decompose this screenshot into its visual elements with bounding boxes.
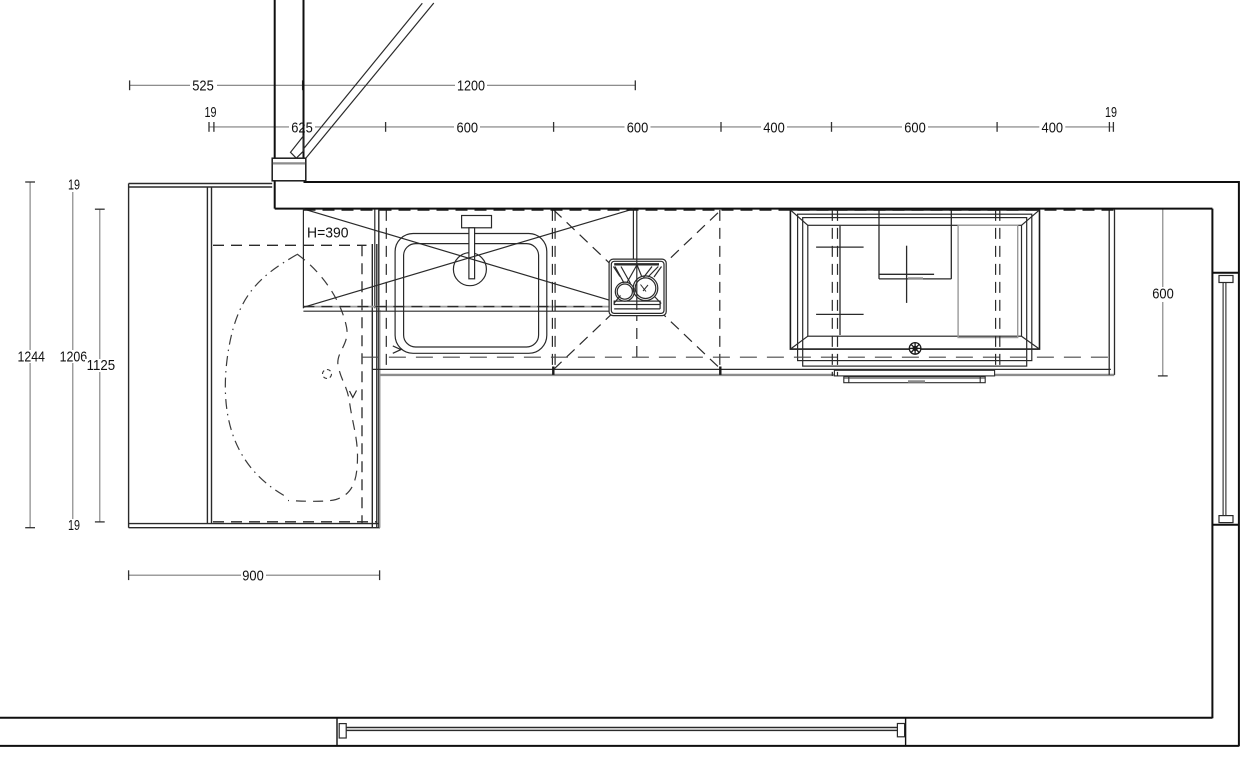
svg-text:19: 19 xyxy=(1105,105,1117,121)
svg-text:525: 525 xyxy=(192,79,214,95)
svg-text:H=390: H=390 xyxy=(307,226,349,242)
svg-text:900: 900 xyxy=(242,569,264,585)
svg-text:1206: 1206 xyxy=(60,349,88,365)
svg-text:400: 400 xyxy=(1042,121,1064,137)
svg-text:1200: 1200 xyxy=(457,79,485,95)
svg-text:1244: 1244 xyxy=(17,349,45,365)
svg-text:600: 600 xyxy=(457,121,479,137)
svg-text:1125: 1125 xyxy=(87,358,116,374)
svg-text:600: 600 xyxy=(1152,287,1174,303)
svg-text:600: 600 xyxy=(627,121,649,137)
svg-text:19: 19 xyxy=(205,105,217,121)
svg-text:400: 400 xyxy=(763,121,785,137)
svg-text:625: 625 xyxy=(291,121,313,137)
svg-text:600: 600 xyxy=(904,121,926,137)
svg-text:19: 19 xyxy=(68,518,80,534)
svg-text:19: 19 xyxy=(68,178,80,194)
